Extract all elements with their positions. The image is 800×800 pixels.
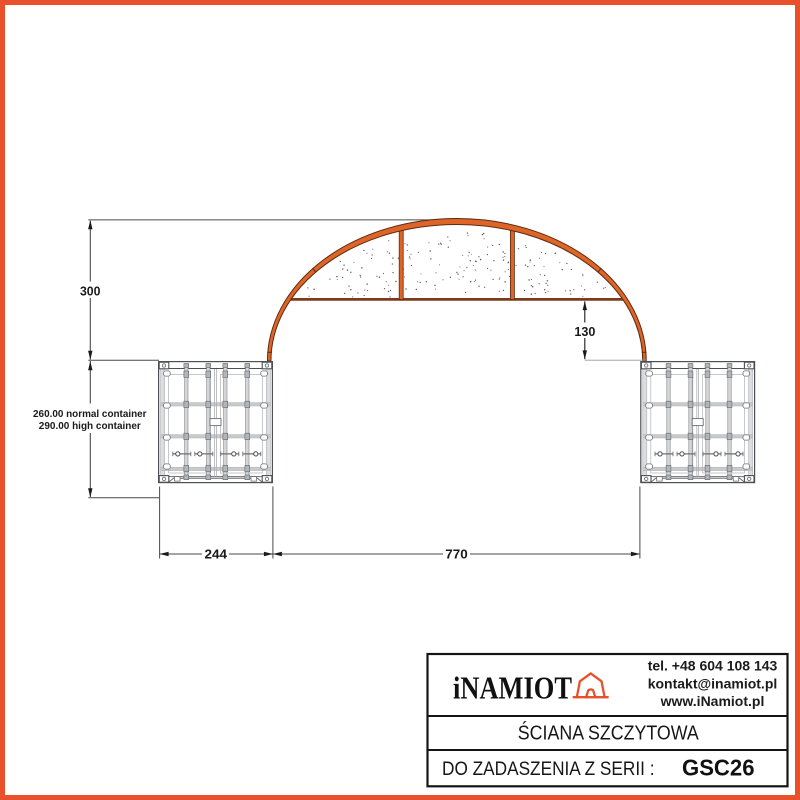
svg-text:244: 244 (205, 546, 228, 561)
svg-text:290.00 high container: 290.00 high container (39, 420, 141, 432)
svg-text:iNAMIOT: iNAMIOT (453, 670, 572, 705)
svg-text:DO ZADASZENIA Z SERII :: DO ZADASZENIA Z SERII : (442, 759, 655, 780)
svg-text:www.iNamiot.pl: www.iNamiot.pl (660, 693, 765, 709)
svg-text:ŚCIANA SZCZYTOWA: ŚCIANA SZCZYTOWA (518, 720, 700, 744)
svg-text:kontakt@inamiot.pl: kontakt@inamiot.pl (648, 675, 778, 691)
svg-text:300: 300 (80, 283, 101, 298)
svg-text:260.00 normal container: 260.00 normal container (33, 408, 147, 420)
svg-text:130: 130 (574, 324, 595, 339)
svg-text:GSC26: GSC26 (682, 754, 755, 780)
svg-text:770: 770 (445, 546, 468, 561)
svg-text:tel. +48 604 108 143: tel. +48 604 108 143 (648, 658, 778, 674)
